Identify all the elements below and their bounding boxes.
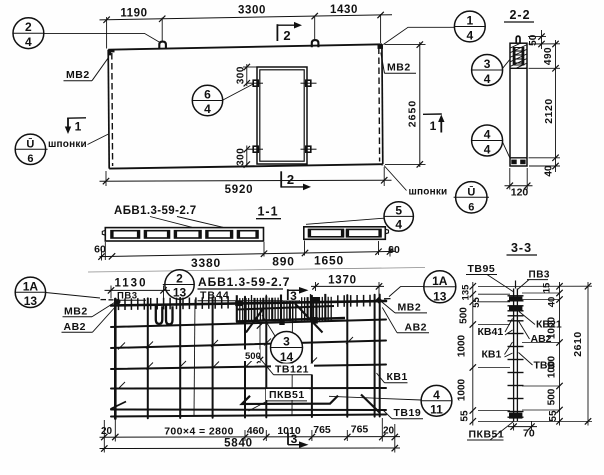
svg-text:2: 2 [25,20,32,34]
svg-text:1190: 1190 [120,8,147,20]
svg-text:70: 70 [523,428,535,440]
svg-text:300: 300 [236,66,247,84]
svg-text:4: 4 [433,388,440,402]
svg-text:55: 55 [471,297,482,308]
svg-text:шпонки: шпонки [409,187,448,198]
svg-text:4: 4 [395,218,402,232]
svg-text:5840: 5840 [224,437,253,449]
svg-text:6: 6 [468,202,474,214]
svg-text:1А: 1А [432,274,448,288]
svg-text:ТВ95: ТВ95 [468,263,496,275]
svg-text:1000: 1000 [457,378,468,401]
svg-text:АБВ1.3-59-2.7: АБВ1.3-59-2.7 [198,275,290,289]
svg-text:1: 1 [466,14,473,28]
svg-text:300: 300 [236,148,247,166]
svg-text:АВ2: АВ2 [405,322,428,334]
svg-text:3300: 3300 [238,5,266,17]
svg-text:6: 6 [204,88,211,102]
svg-text:3: 3 [484,57,491,71]
svg-text:1-1: 1-1 [257,205,278,219]
svg-text:ТВВ: ТВВ [534,360,556,372]
svg-text:КВ1: КВ1 [482,349,502,361]
svg-text:4: 4 [204,102,211,116]
svg-text:ТВ19: ТВ19 [394,407,422,419]
svg-text:890: 890 [272,255,294,269]
svg-text:765: 765 [313,424,331,436]
svg-text:500: 500 [459,307,470,324]
svg-text:1А: 1А [23,279,39,293]
svg-text:3: 3 [291,432,298,446]
svg-text:40: 40 [547,297,558,308]
svg-text:460: 460 [247,425,265,437]
svg-text:55: 55 [460,410,471,422]
svg-text:700×4 = 2800: 700×4 = 2800 [164,426,234,438]
svg-text:2610: 2610 [572,331,584,356]
svg-text:Ū: Ū [26,138,34,150]
svg-text:3-3: 3-3 [511,241,532,255]
svg-text:МВ2: МВ2 [66,69,90,81]
svg-text:ПКВ51: ПКВ51 [469,429,505,441]
svg-text:1: 1 [75,120,82,134]
svg-text:2-2: 2-2 [509,8,530,22]
svg-text:4: 4 [25,35,32,49]
svg-text:АБВ1.3-59-2.7: АБВ1.3-59-2.7 [114,205,197,217]
svg-text:20: 20 [383,426,395,437]
svg-text:4: 4 [484,72,491,86]
svg-text:3380: 3380 [191,256,221,270]
svg-text:13: 13 [24,294,38,308]
svg-text:1370: 1370 [328,274,357,286]
svg-text:ПКВ51: ПКВ51 [269,389,305,401]
svg-text:5920: 5920 [225,184,254,196]
svg-text:1130: 1130 [115,277,148,289]
svg-text:50: 50 [528,34,539,46]
svg-text:МВ2: МВ2 [64,306,88,318]
svg-text:КВ1: КВ1 [387,371,408,383]
svg-text:60: 60 [388,244,400,256]
svg-text:ПВ3: ПВ3 [529,270,550,281]
svg-text:МВ2: МВ2 [398,302,422,314]
svg-text:5: 5 [395,203,402,217]
svg-text:14: 14 [280,350,294,364]
svg-text:11: 11 [430,403,443,417]
svg-text:20: 20 [101,426,113,437]
svg-text:3: 3 [283,335,290,349]
svg-text:МВ2: МВ2 [387,62,411,74]
svg-text:шпонки: шпонки [48,139,87,150]
svg-text:ТВ121: ТВ121 [275,364,309,376]
svg-text:КВ21: КВ21 [536,319,562,331]
svg-text:2: 2 [283,28,290,43]
svg-text:60: 60 [94,244,106,256]
svg-text:490: 490 [543,47,554,65]
svg-text:1430: 1430 [330,4,358,16]
svg-text:765: 765 [351,424,369,436]
svg-text:1: 1 [430,119,437,133]
svg-text:13: 13 [433,289,447,303]
svg-text:АВ2: АВ2 [531,333,552,345]
svg-text:2120: 2120 [543,98,555,123]
svg-text:55: 55 [548,410,559,422]
svg-text:2650: 2650 [407,100,419,127]
svg-text:4: 4 [484,128,491,142]
svg-text:3: 3 [290,289,297,303]
svg-text:1000: 1000 [457,334,468,357]
svg-text:2: 2 [287,172,294,187]
svg-text:Ū: Ū [467,186,475,198]
svg-text:500: 500 [547,388,558,405]
svg-text:4: 4 [484,143,491,157]
svg-text:120: 120 [511,187,529,199]
svg-text:15: 15 [542,282,553,293]
svg-text:4: 4 [466,28,473,42]
svg-text:2: 2 [176,272,183,286]
svg-text:1650: 1650 [314,254,344,268]
svg-text:6: 6 [27,153,33,165]
svg-text:АВ2: АВ2 [64,321,87,333]
svg-text:40: 40 [544,165,555,177]
svg-text:КВ41: КВ41 [478,326,504,338]
